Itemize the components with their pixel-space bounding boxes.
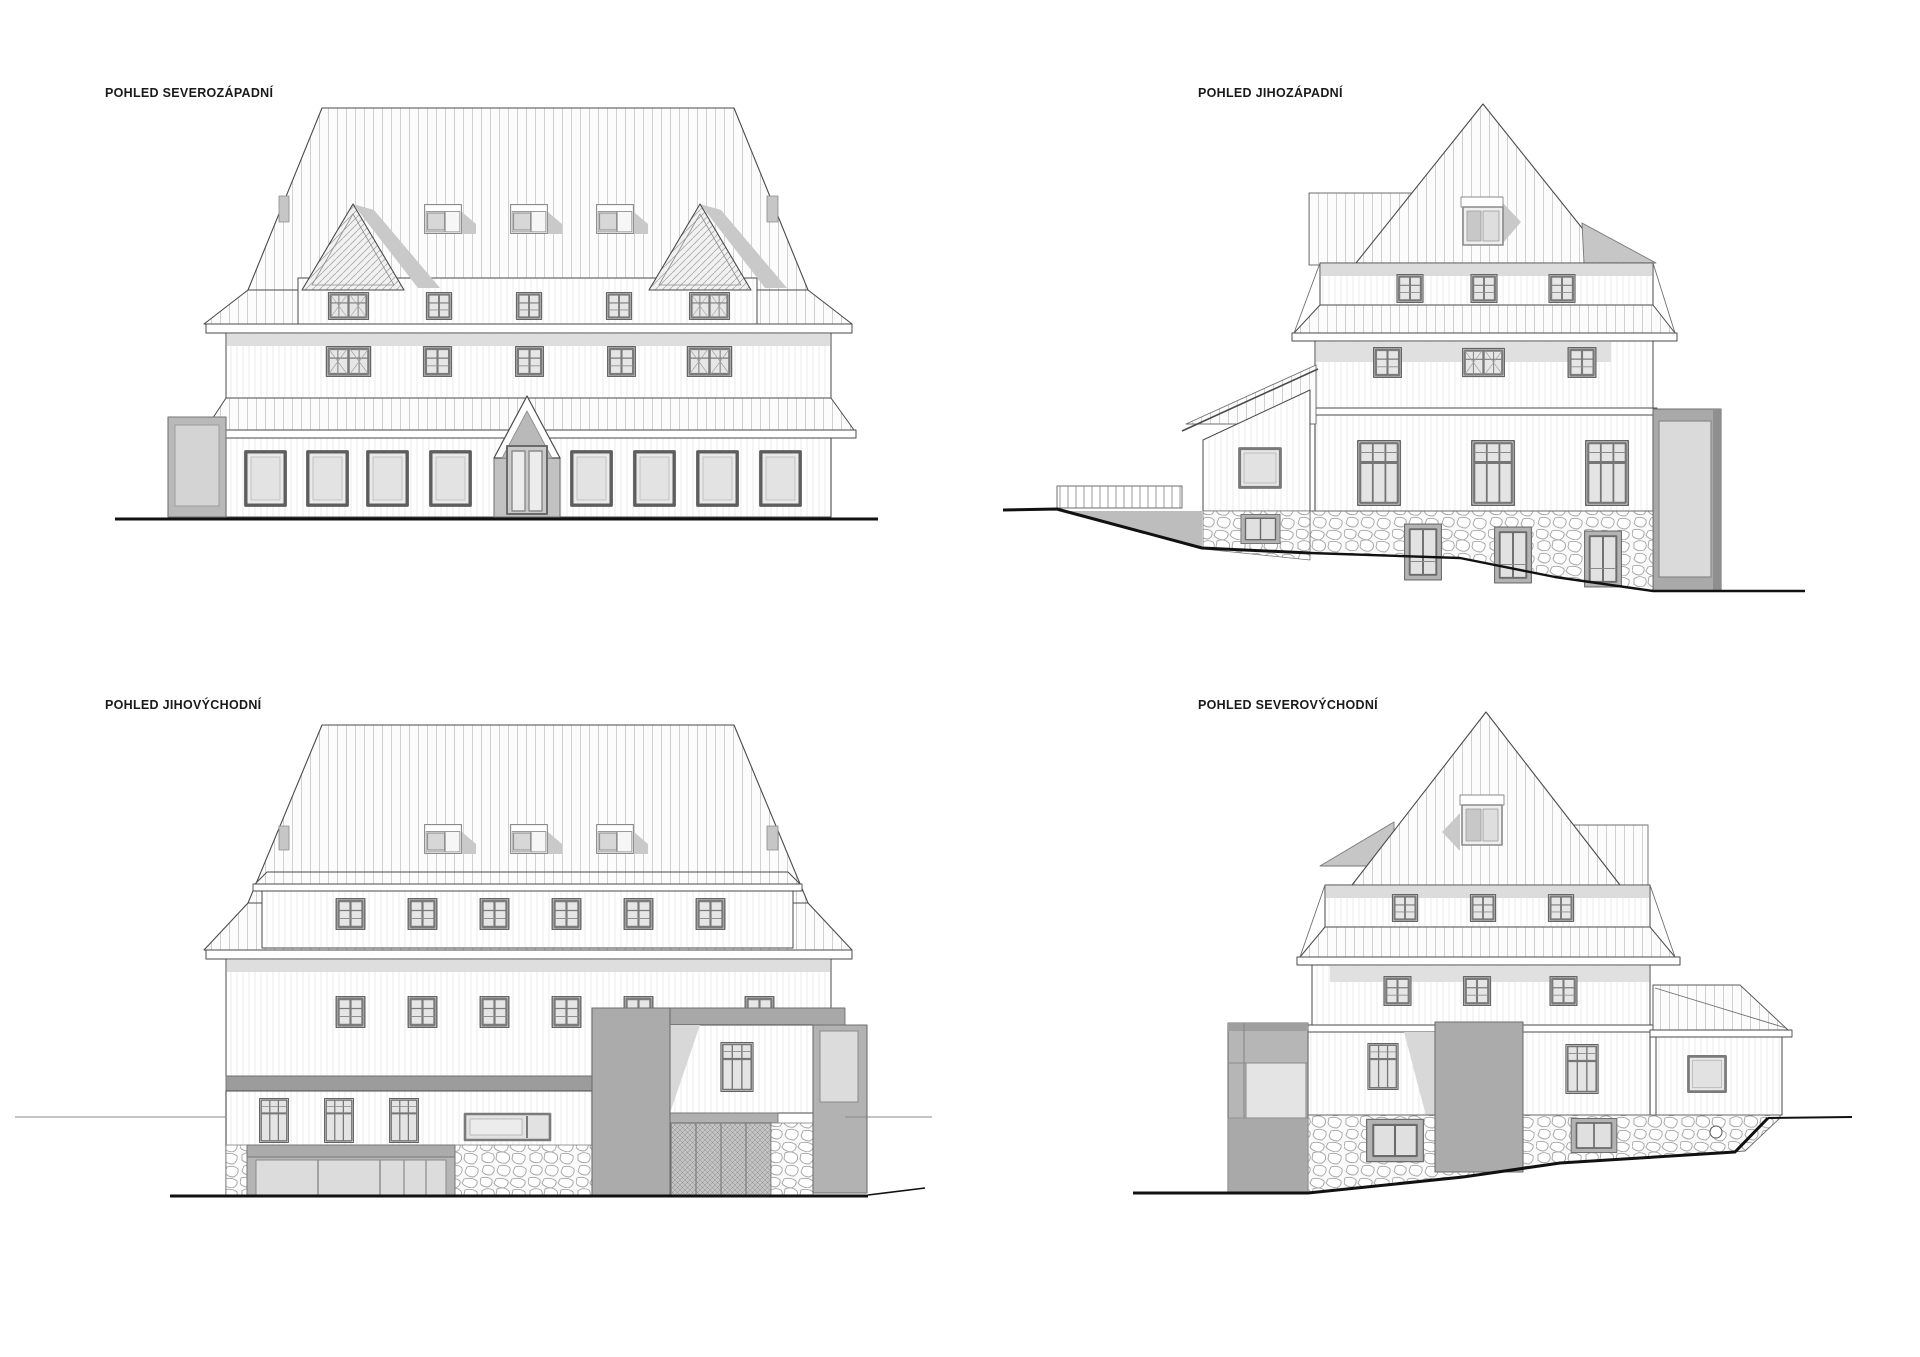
sw-middle-window xyxy=(1568,348,1596,378)
nw-ground-window xyxy=(698,452,737,505)
se-shed-dormer xyxy=(253,872,802,948)
ne-attic-window xyxy=(1392,895,1417,922)
sw-ground-window xyxy=(1586,441,1628,505)
nw-ground-window xyxy=(368,452,407,505)
se-dormer-window xyxy=(408,899,437,930)
sw-annex-window xyxy=(1240,449,1281,488)
nw-attic-window xyxy=(329,293,369,320)
ne-spire-roof xyxy=(1352,712,1620,885)
nw-middle-window xyxy=(608,347,636,377)
se-chimney-left xyxy=(279,826,289,850)
sw-basement-door xyxy=(1495,527,1532,583)
elevations-drawing: POHLED SEVEROZÁPADNÍ xyxy=(0,0,1920,1357)
ne-middle-window xyxy=(1464,977,1491,1006)
ne-basement-window xyxy=(1571,1119,1617,1153)
nw-shadow-band xyxy=(227,334,830,346)
ne-glazed-bay xyxy=(1228,1023,1308,1193)
se-middle-window xyxy=(480,997,509,1028)
sw-attic-window xyxy=(1397,275,1423,303)
se-middle-window xyxy=(552,997,581,1028)
nw-entrance-door xyxy=(507,446,547,514)
ne-ground-window xyxy=(1566,1045,1598,1094)
ne-middle-window xyxy=(1550,977,1577,1006)
se-band-left xyxy=(226,1076,592,1091)
se-ground-window xyxy=(721,1043,753,1092)
se-eaves-fascia xyxy=(206,950,852,959)
sw-attic-band xyxy=(1320,263,1653,307)
sw-basement-door xyxy=(1585,531,1622,587)
sw-ground-floor xyxy=(1315,415,1653,511)
nw-ground-window xyxy=(246,452,285,505)
nw-middle-floor xyxy=(226,333,831,398)
elevation-southwest-label: POHLED JIHOZÁPADNÍ xyxy=(1198,85,1343,100)
sw-railing xyxy=(1057,486,1182,508)
elevation-northwest: POHLED SEVEROZÁPADNÍ xyxy=(105,85,878,519)
se-chimney-right xyxy=(767,826,778,850)
ne-ground-window xyxy=(1368,1044,1398,1090)
nw-attic-window xyxy=(690,293,730,320)
sw-glazed-bay xyxy=(1653,409,1721,591)
nw-ground-window xyxy=(635,452,674,505)
se-dormer-window xyxy=(552,899,581,930)
se-ground-floor-right xyxy=(592,1008,867,1196)
ne-right-annex xyxy=(1650,985,1792,1115)
nw-middle-window xyxy=(326,347,370,377)
nw-ground-window xyxy=(572,452,611,505)
se-dormer-window xyxy=(624,899,653,930)
sw-ground-window xyxy=(1358,441,1400,505)
sw-spire-roof xyxy=(1352,104,1656,268)
nw-middle-window xyxy=(424,347,452,377)
se-entrance-pillar xyxy=(592,1008,670,1196)
se-middle-window xyxy=(408,997,437,1028)
ne-attic-window xyxy=(1548,895,1573,922)
ne-basement-window xyxy=(1367,1119,1424,1161)
sw-middle-window xyxy=(1463,349,1505,377)
nw-attic-window xyxy=(426,293,451,320)
se-dormer-window xyxy=(480,899,509,930)
nw-roof-dormer-windows xyxy=(425,205,648,234)
sw-middle-floor xyxy=(1311,341,1657,415)
nw-ground-window xyxy=(308,452,347,505)
nw-chimney-right xyxy=(767,196,778,222)
elevation-southwest: POHLED JIHOZÁPADNÍ xyxy=(1003,85,1805,591)
se-garage-door xyxy=(671,1123,771,1196)
se-dormer-window xyxy=(696,899,725,930)
nw-middle-window xyxy=(516,347,544,377)
se-glazed-bay xyxy=(813,1025,867,1193)
ne-middle-window xyxy=(1384,977,1411,1006)
nw-middle-window xyxy=(687,347,731,377)
sw-ground-window xyxy=(1472,441,1514,505)
nw-ground-window xyxy=(431,452,470,505)
nw-attic-window xyxy=(606,293,631,320)
ne-attic-band xyxy=(1325,885,1650,927)
se-ground-floor-left xyxy=(226,1076,592,1196)
ne-vent-circle xyxy=(1710,1126,1722,1138)
nw-left-annex xyxy=(168,417,226,517)
elevation-northwest-label: POHLED SEVEROZÁPADNÍ xyxy=(105,85,274,100)
sw-attic-window xyxy=(1549,275,1575,303)
sw-basement-door xyxy=(1405,524,1442,580)
sw-middle-window xyxy=(1374,348,1402,378)
nw-ground-window xyxy=(761,452,800,505)
se-roof-dormer-windows xyxy=(425,825,648,854)
elevation-southeast-label: POHLED JIHOVÝCHODNÍ xyxy=(105,697,262,712)
sw-annex-basement-window xyxy=(1241,514,1280,543)
nw-chimney-left xyxy=(279,196,289,222)
elevation-southeast: POHLED JIHOVÝCHODNÍ xyxy=(15,697,932,1196)
elevation-northeast: POHLED SEVEROVÝCHODNÍ xyxy=(1133,697,1852,1193)
se-middle-window xyxy=(336,997,365,1028)
ne-entrance-pillar xyxy=(1435,1022,1523,1172)
sw-left-annex xyxy=(1182,365,1318,560)
se-ribbon-window xyxy=(465,1114,550,1140)
se-ground-window xyxy=(325,1099,354,1143)
nw-attic-window xyxy=(516,293,541,320)
se-glazed-garage xyxy=(247,1145,455,1196)
drawing-sheet: POHLED SEVEROZÁPADNÍ xyxy=(0,0,1920,1357)
se-ground-window xyxy=(260,1099,289,1143)
ne-attic-window xyxy=(1470,895,1495,922)
sw-stone-foundation xyxy=(1310,511,1653,591)
se-ground-window xyxy=(390,1099,419,1143)
elevation-northeast-label: POHLED SEVEROVÝCHODNÍ xyxy=(1198,697,1378,712)
ne-annex-window xyxy=(1688,1056,1725,1091)
se-dormer-window xyxy=(336,899,365,930)
nw-eaves-fascia xyxy=(206,324,852,333)
sw-attic-window xyxy=(1471,275,1497,303)
